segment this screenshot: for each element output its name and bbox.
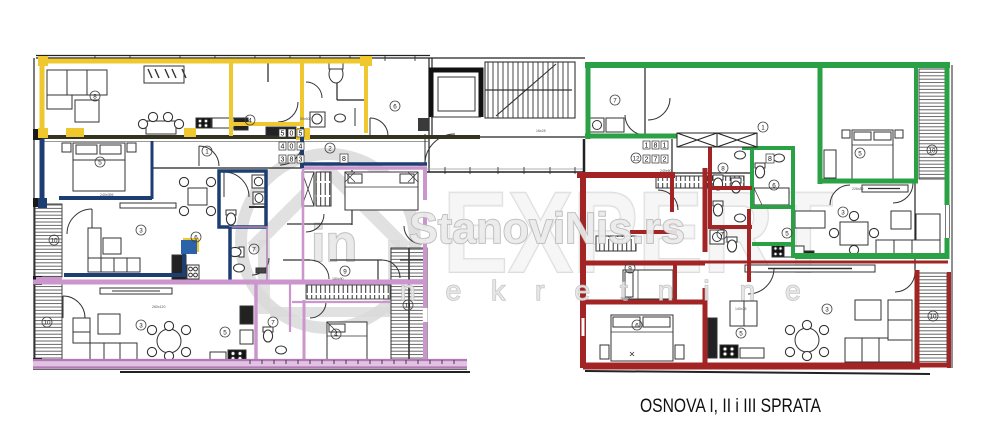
svg-text:5: 5 xyxy=(98,160,102,167)
svg-text:4: 4 xyxy=(299,144,303,151)
svg-text:4: 4 xyxy=(334,332,338,339)
svg-text:90x60: 90x60 xyxy=(300,117,310,121)
svg-text:245x60: 245x60 xyxy=(660,169,672,173)
svg-text:240x395: 240x395 xyxy=(100,193,113,197)
svg-text:12: 12 xyxy=(632,156,640,163)
svg-text:7: 7 xyxy=(252,247,256,254)
svg-text:8: 8 xyxy=(768,156,772,163)
svg-text:1: 1 xyxy=(761,125,765,132)
svg-text:10: 10 xyxy=(928,148,936,155)
svg-text:5: 5 xyxy=(299,131,303,138)
svg-text:5: 5 xyxy=(223,330,227,337)
svg-text:3: 3 xyxy=(299,157,303,164)
svg-text:5: 5 xyxy=(739,331,743,338)
svg-text:8: 8 xyxy=(721,166,725,173)
svg-text:5: 5 xyxy=(281,131,285,138)
svg-text:6: 6 xyxy=(393,104,397,111)
svg-text:5: 5 xyxy=(858,151,862,158)
svg-text:7: 7 xyxy=(271,320,275,327)
svg-text:260x120: 260x120 xyxy=(152,305,165,309)
svg-text:3: 3 xyxy=(825,307,829,314)
svg-text:3: 3 xyxy=(841,210,845,217)
svg-text:2: 2 xyxy=(328,146,332,153)
svg-text:4: 4 xyxy=(281,144,285,151)
svg-text:8: 8 xyxy=(342,156,346,163)
svg-text:3: 3 xyxy=(139,323,143,330)
svg-text:StanoviNis.rs: StanoviNis.rs xyxy=(409,204,685,253)
svg-text:6: 6 xyxy=(635,323,639,330)
svg-text:7: 7 xyxy=(613,98,617,105)
svg-text:6: 6 xyxy=(772,183,776,190)
svg-text:0: 0 xyxy=(290,144,294,151)
svg-text:9: 9 xyxy=(628,266,632,273)
svg-text:2: 2 xyxy=(645,157,649,164)
svg-text:226x80: 226x80 xyxy=(852,187,864,191)
svg-text:120: 120 xyxy=(418,163,424,167)
svg-text:2: 2 xyxy=(663,157,667,164)
svg-text:16x28: 16x28 xyxy=(536,129,546,133)
svg-text:4: 4 xyxy=(248,118,252,125)
svg-text:7: 7 xyxy=(720,232,724,239)
svg-text:6: 6 xyxy=(194,235,198,242)
svg-text:10: 10 xyxy=(43,320,51,327)
svg-text:1: 1 xyxy=(205,149,209,156)
svg-text:9: 9 xyxy=(343,269,347,276)
svg-text:180x90: 180x90 xyxy=(332,277,344,281)
svg-text:8: 8 xyxy=(654,143,658,150)
svg-text:3: 3 xyxy=(139,228,143,235)
svg-text:nekretnine: nekretnine xyxy=(400,275,831,306)
svg-text:8: 8 xyxy=(93,94,97,101)
svg-text:10: 10 xyxy=(929,314,937,321)
svg-text:205x80: 205x80 xyxy=(620,297,632,301)
svg-text:3: 3 xyxy=(281,157,285,164)
svg-text:10: 10 xyxy=(50,238,58,245)
svg-text:1: 1 xyxy=(645,143,649,150)
svg-text:8: 8 xyxy=(290,157,294,164)
svg-text:1: 1 xyxy=(663,143,667,150)
svg-text:0: 0 xyxy=(290,131,294,138)
svg-text:140x75: 140x75 xyxy=(735,307,747,311)
svg-text:OSNOVA I, II i III SPRATA: OSNOVA I, II i III SPRATA xyxy=(640,396,821,417)
svg-text:7: 7 xyxy=(654,157,658,164)
svg-text:5: 5 xyxy=(785,231,789,238)
